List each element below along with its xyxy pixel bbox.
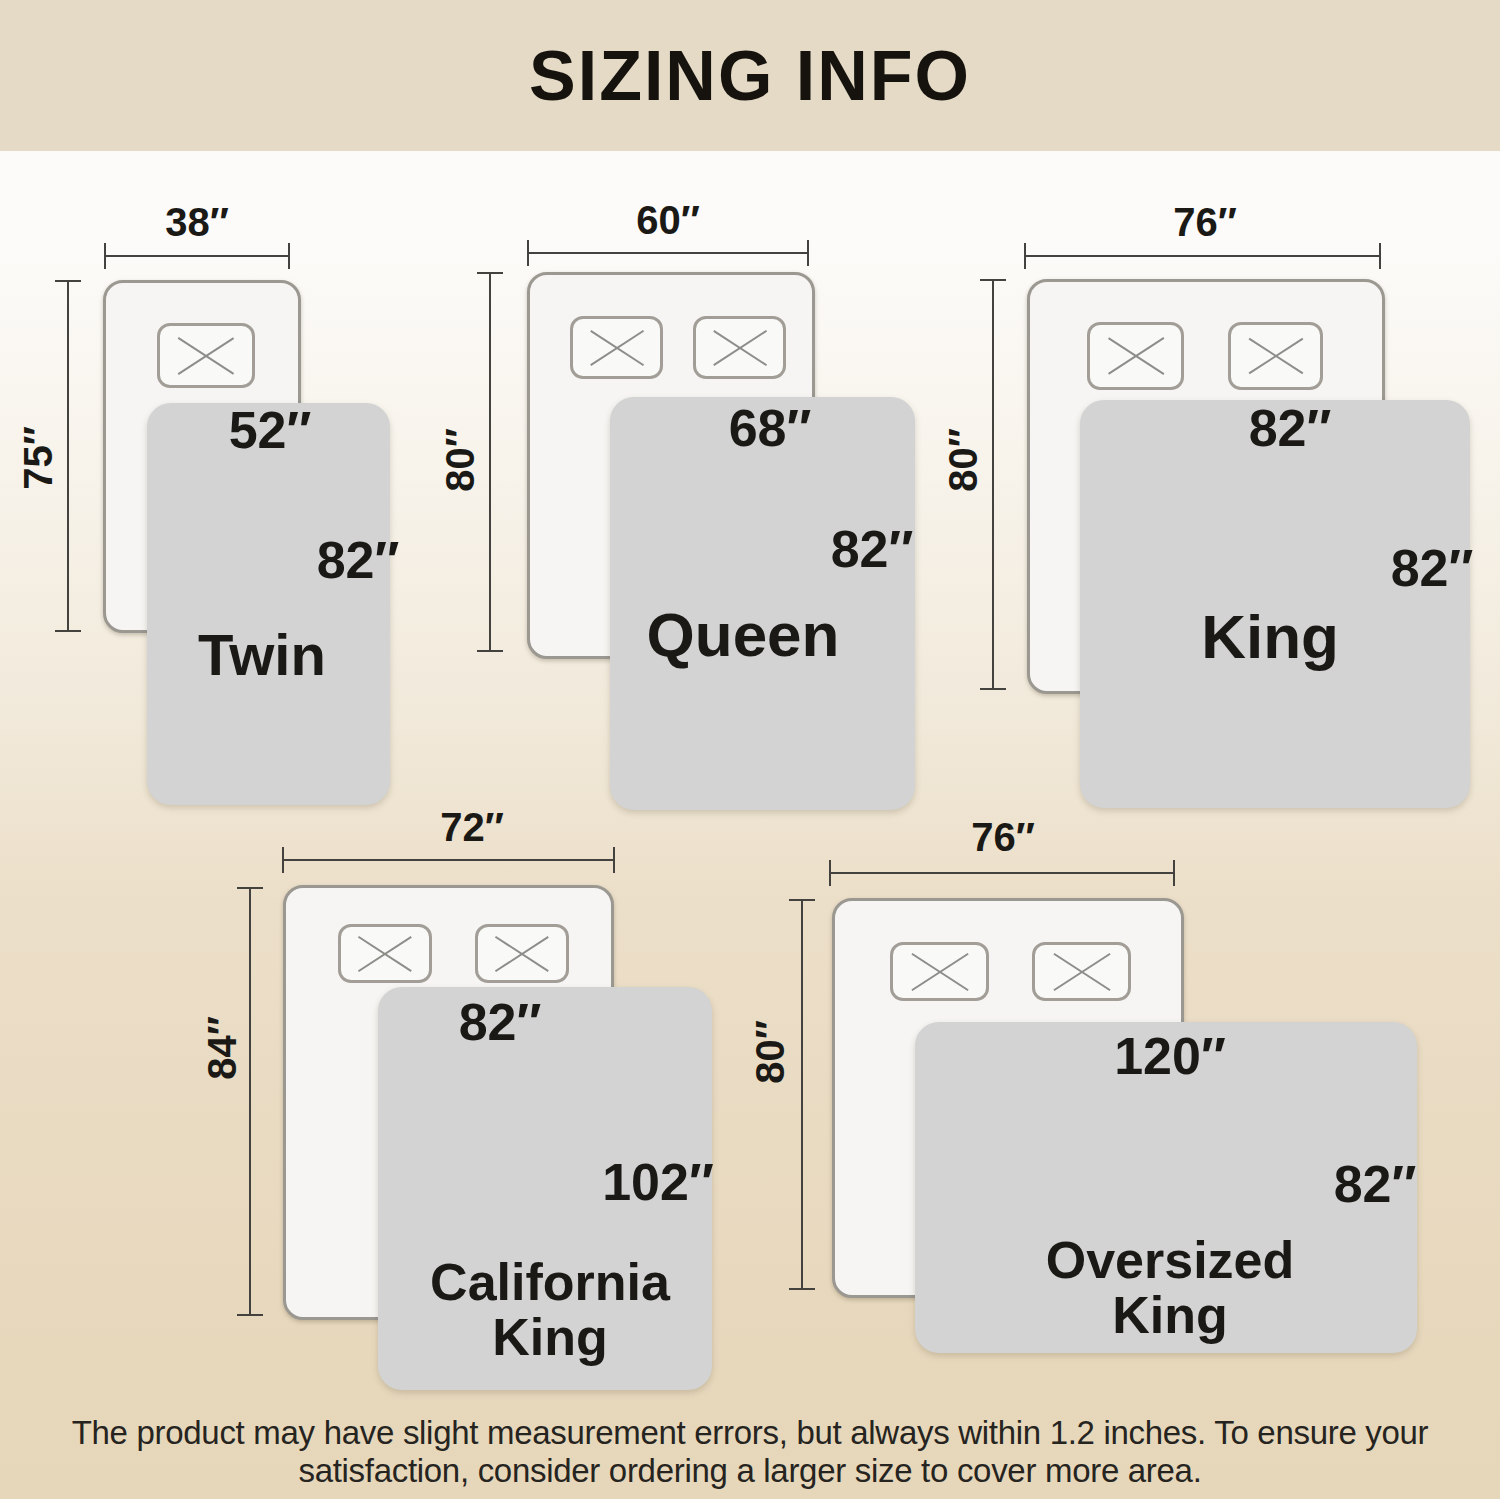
mattress-width-dimension-line [282, 847, 615, 873]
blanket-width-label: 120″ [1114, 1026, 1226, 1086]
mattress-width-label: 72″ [440, 805, 504, 850]
pillow-icon [475, 924, 569, 983]
mattress-width-label: 76″ [971, 815, 1035, 860]
blanket-height-label: 82″ [1334, 1154, 1417, 1214]
mattress-width-dimension-line [829, 860, 1175, 886]
pillow-icon [1087, 322, 1184, 390]
blanket-height-label: 82″ [1391, 538, 1474, 598]
size-name-label: California King [380, 1255, 720, 1364]
size-name-label: Queen [647, 599, 840, 670]
mattress-height-dimension-line [55, 280, 81, 632]
mattress-width-label: 60″ [636, 198, 700, 243]
disclaimer-text: The product may have slight measurement … [0, 1414, 1500, 1490]
diagram-oversized-king: 76″ 80″ 120″ 82″ Oversized King [0, 0, 1500, 1499]
mattress-width-label: 76″ [1173, 200, 1237, 245]
mattress-outline [832, 898, 1184, 1298]
disclaimer-line-1: The product may have slight measurement … [0, 1414, 1500, 1452]
diagram-king: 76″ 80″ 82″ 82″ King [0, 0, 1500, 1499]
mattress-height-dimension-line [980, 279, 1006, 690]
pillow-icon [1228, 322, 1323, 390]
mattress-height-label: 75″ [16, 426, 61, 490]
page-title: SIZING INFO [529, 36, 971, 116]
pillow-icon [338, 924, 432, 983]
blanket-width-label: 68″ [729, 398, 812, 458]
disclaimer-line-2: satisfaction, consider ordering a larger… [0, 1452, 1500, 1490]
diagram-twin: 38″ 75″ 52″ 82″ Twin [0, 0, 1500, 1499]
mattress-height-label: 80″ [438, 428, 483, 492]
blanket-shape [610, 397, 915, 810]
mattress-outline [283, 885, 614, 1320]
sizing-info-graphic: SIZING INFO 38″ 75″ 52″ 82″ Twin 60″ 80″… [0, 0, 1500, 1499]
blanket-width-label: 82″ [1249, 398, 1332, 458]
blanket-shape [915, 1022, 1417, 1353]
size-name-label: Twin [198, 621, 326, 688]
mattress-height-dimension-line [477, 272, 503, 652]
blanket-shape [147, 403, 390, 805]
mattress-height-label: 80″ [941, 428, 986, 492]
blanket-shape [378, 987, 712, 1390]
diagram-queen: 60″ 80″ 68″ 82″ Queen [0, 0, 1500, 1499]
mattress-height-label: 84″ [200, 1016, 245, 1080]
mattress-height-dimension-line [237, 887, 263, 1316]
mattress-width-dimension-line [527, 240, 809, 266]
blanket-width-label: 82″ [459, 992, 542, 1052]
mattress-height-dimension-line [789, 899, 815, 1290]
mattress-height-label: 80″ [748, 1020, 793, 1084]
mattress-outline [1027, 279, 1385, 694]
size-name-label: Oversized King [990, 1233, 1350, 1342]
mattress-width-dimension-line [1024, 243, 1381, 269]
size-name-label: King [1201, 601, 1339, 672]
blanket-width-label: 52″ [229, 400, 312, 460]
pillow-icon [693, 316, 786, 379]
blanket-height-label: 102″ [602, 1152, 714, 1212]
blanket-height-label: 82″ [317, 530, 400, 590]
diagram-california-king: 72″ 84″ 82″ 102″ California King [0, 0, 1500, 1499]
mattress-outline [527, 272, 815, 659]
mattress-width-label: 38″ [165, 200, 229, 245]
blanket-height-label: 82″ [831, 519, 914, 579]
blanket-shape [1080, 400, 1470, 808]
mattress-width-dimension-line [104, 243, 290, 269]
header-band: SIZING INFO [0, 0, 1500, 151]
mattress-outline [103, 280, 301, 633]
pillow-icon [570, 316, 663, 379]
pillow-icon [157, 323, 255, 388]
pillow-icon [1032, 942, 1131, 1001]
pillow-icon [890, 942, 989, 1001]
